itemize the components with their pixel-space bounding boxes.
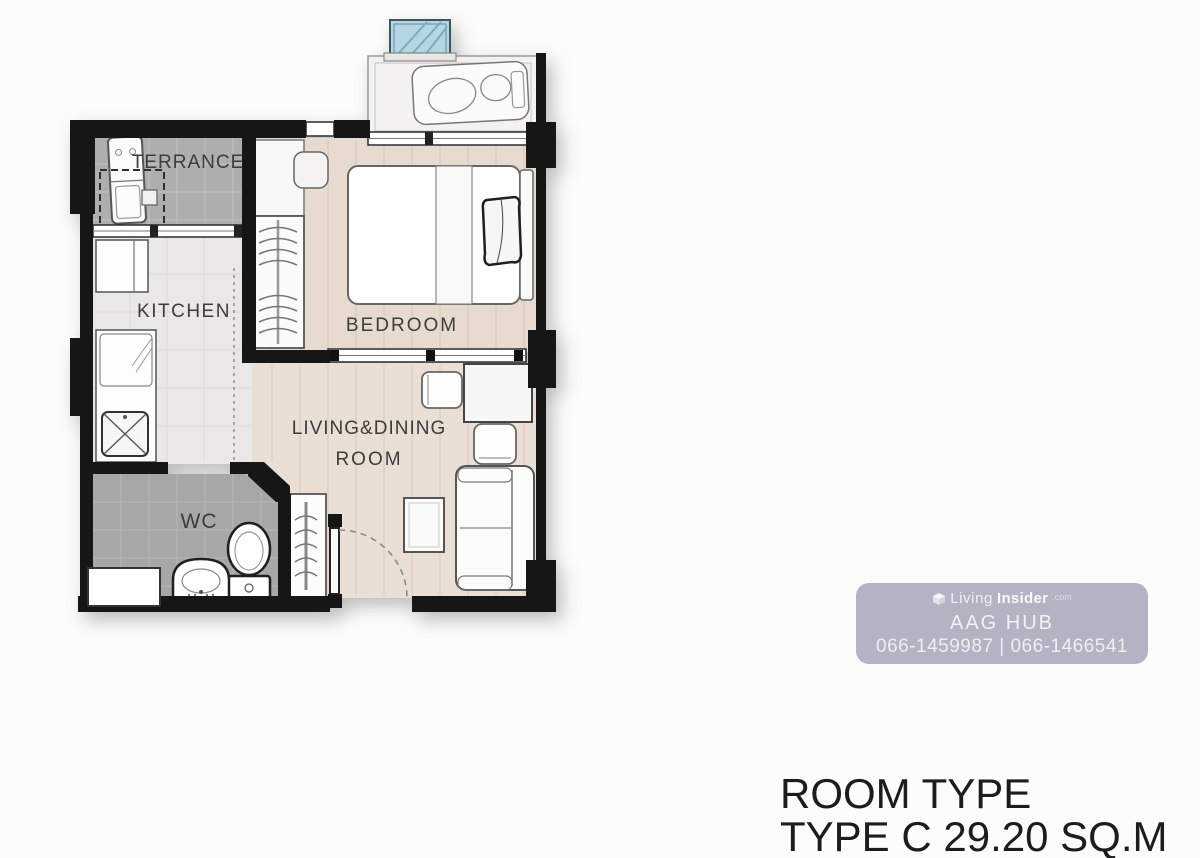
coffee-table bbox=[404, 498, 444, 552]
agency-name: AAG HUB bbox=[950, 611, 1054, 635]
wash-basin bbox=[173, 559, 229, 598]
brand-prefix: Living bbox=[950, 590, 993, 607]
room-type-value: TYPE C 29.20 SQ.M bbox=[780, 815, 1167, 858]
room-type-title: ROOM TYPE bbox=[780, 772, 1167, 815]
ac-unit bbox=[412, 61, 530, 125]
terrace-stool bbox=[142, 190, 157, 205]
toilet bbox=[228, 523, 270, 600]
entrance-closet bbox=[288, 494, 326, 598]
bedroom-stool bbox=[294, 152, 328, 188]
pillow bbox=[483, 197, 521, 265]
page-root: TERRANCE KITCHEN BEDROOM LIVING&DINING R… bbox=[0, 0, 1200, 858]
room-label-living-line1: LIVING&DINING bbox=[292, 418, 446, 439]
room-label-living-line2: ROOM bbox=[335, 449, 402, 470]
brand-suffix: .com bbox=[1052, 589, 1072, 608]
living-insider-logo-icon bbox=[932, 592, 946, 606]
corridor-high-window bbox=[306, 122, 334, 136]
watermark-card: Living Insider .com AAG HUB 066-1459987 … bbox=[856, 583, 1148, 664]
room-label-bedroom: BEDROOM bbox=[346, 315, 458, 336]
fridge bbox=[96, 240, 148, 292]
floor-plan-svg: TERRANCE KITCHEN BEDROOM LIVING&DINING R… bbox=[0, 0, 1200, 858]
kitchen-sink bbox=[102, 412, 148, 456]
wardrobe bbox=[252, 216, 304, 348]
sofa bbox=[456, 466, 534, 590]
dining-chair-bottom bbox=[474, 424, 516, 464]
room-type-caption: ROOM TYPE TYPE C 29.20 SQ.M bbox=[780, 772, 1167, 858]
brand-bold: Insider bbox=[997, 590, 1048, 607]
balcony-glass-window bbox=[384, 20, 456, 61]
phone-numbers: 066-1459987 | 066-1466541 bbox=[876, 635, 1128, 658]
room-label-kitchen: KITCHEN bbox=[137, 301, 231, 322]
bedroom-balcony-sliding-door bbox=[368, 132, 536, 145]
watermark-brand: Living Insider .com bbox=[932, 589, 1072, 608]
bedroom-living-sliding-window bbox=[328, 349, 526, 362]
room-label-wc: WC bbox=[181, 510, 218, 533]
floor-plan: TERRANCE KITCHEN BEDROOM LIVING&DINING R… bbox=[70, 20, 556, 612]
washing-machine bbox=[108, 136, 146, 224]
dining-table bbox=[464, 364, 532, 422]
dining-chair-left bbox=[422, 372, 462, 408]
exterior-shaft-box bbox=[88, 568, 160, 606]
terrace-kitchen-window bbox=[93, 225, 242, 237]
room-label-terrace: TERRANCE bbox=[132, 152, 245, 173]
